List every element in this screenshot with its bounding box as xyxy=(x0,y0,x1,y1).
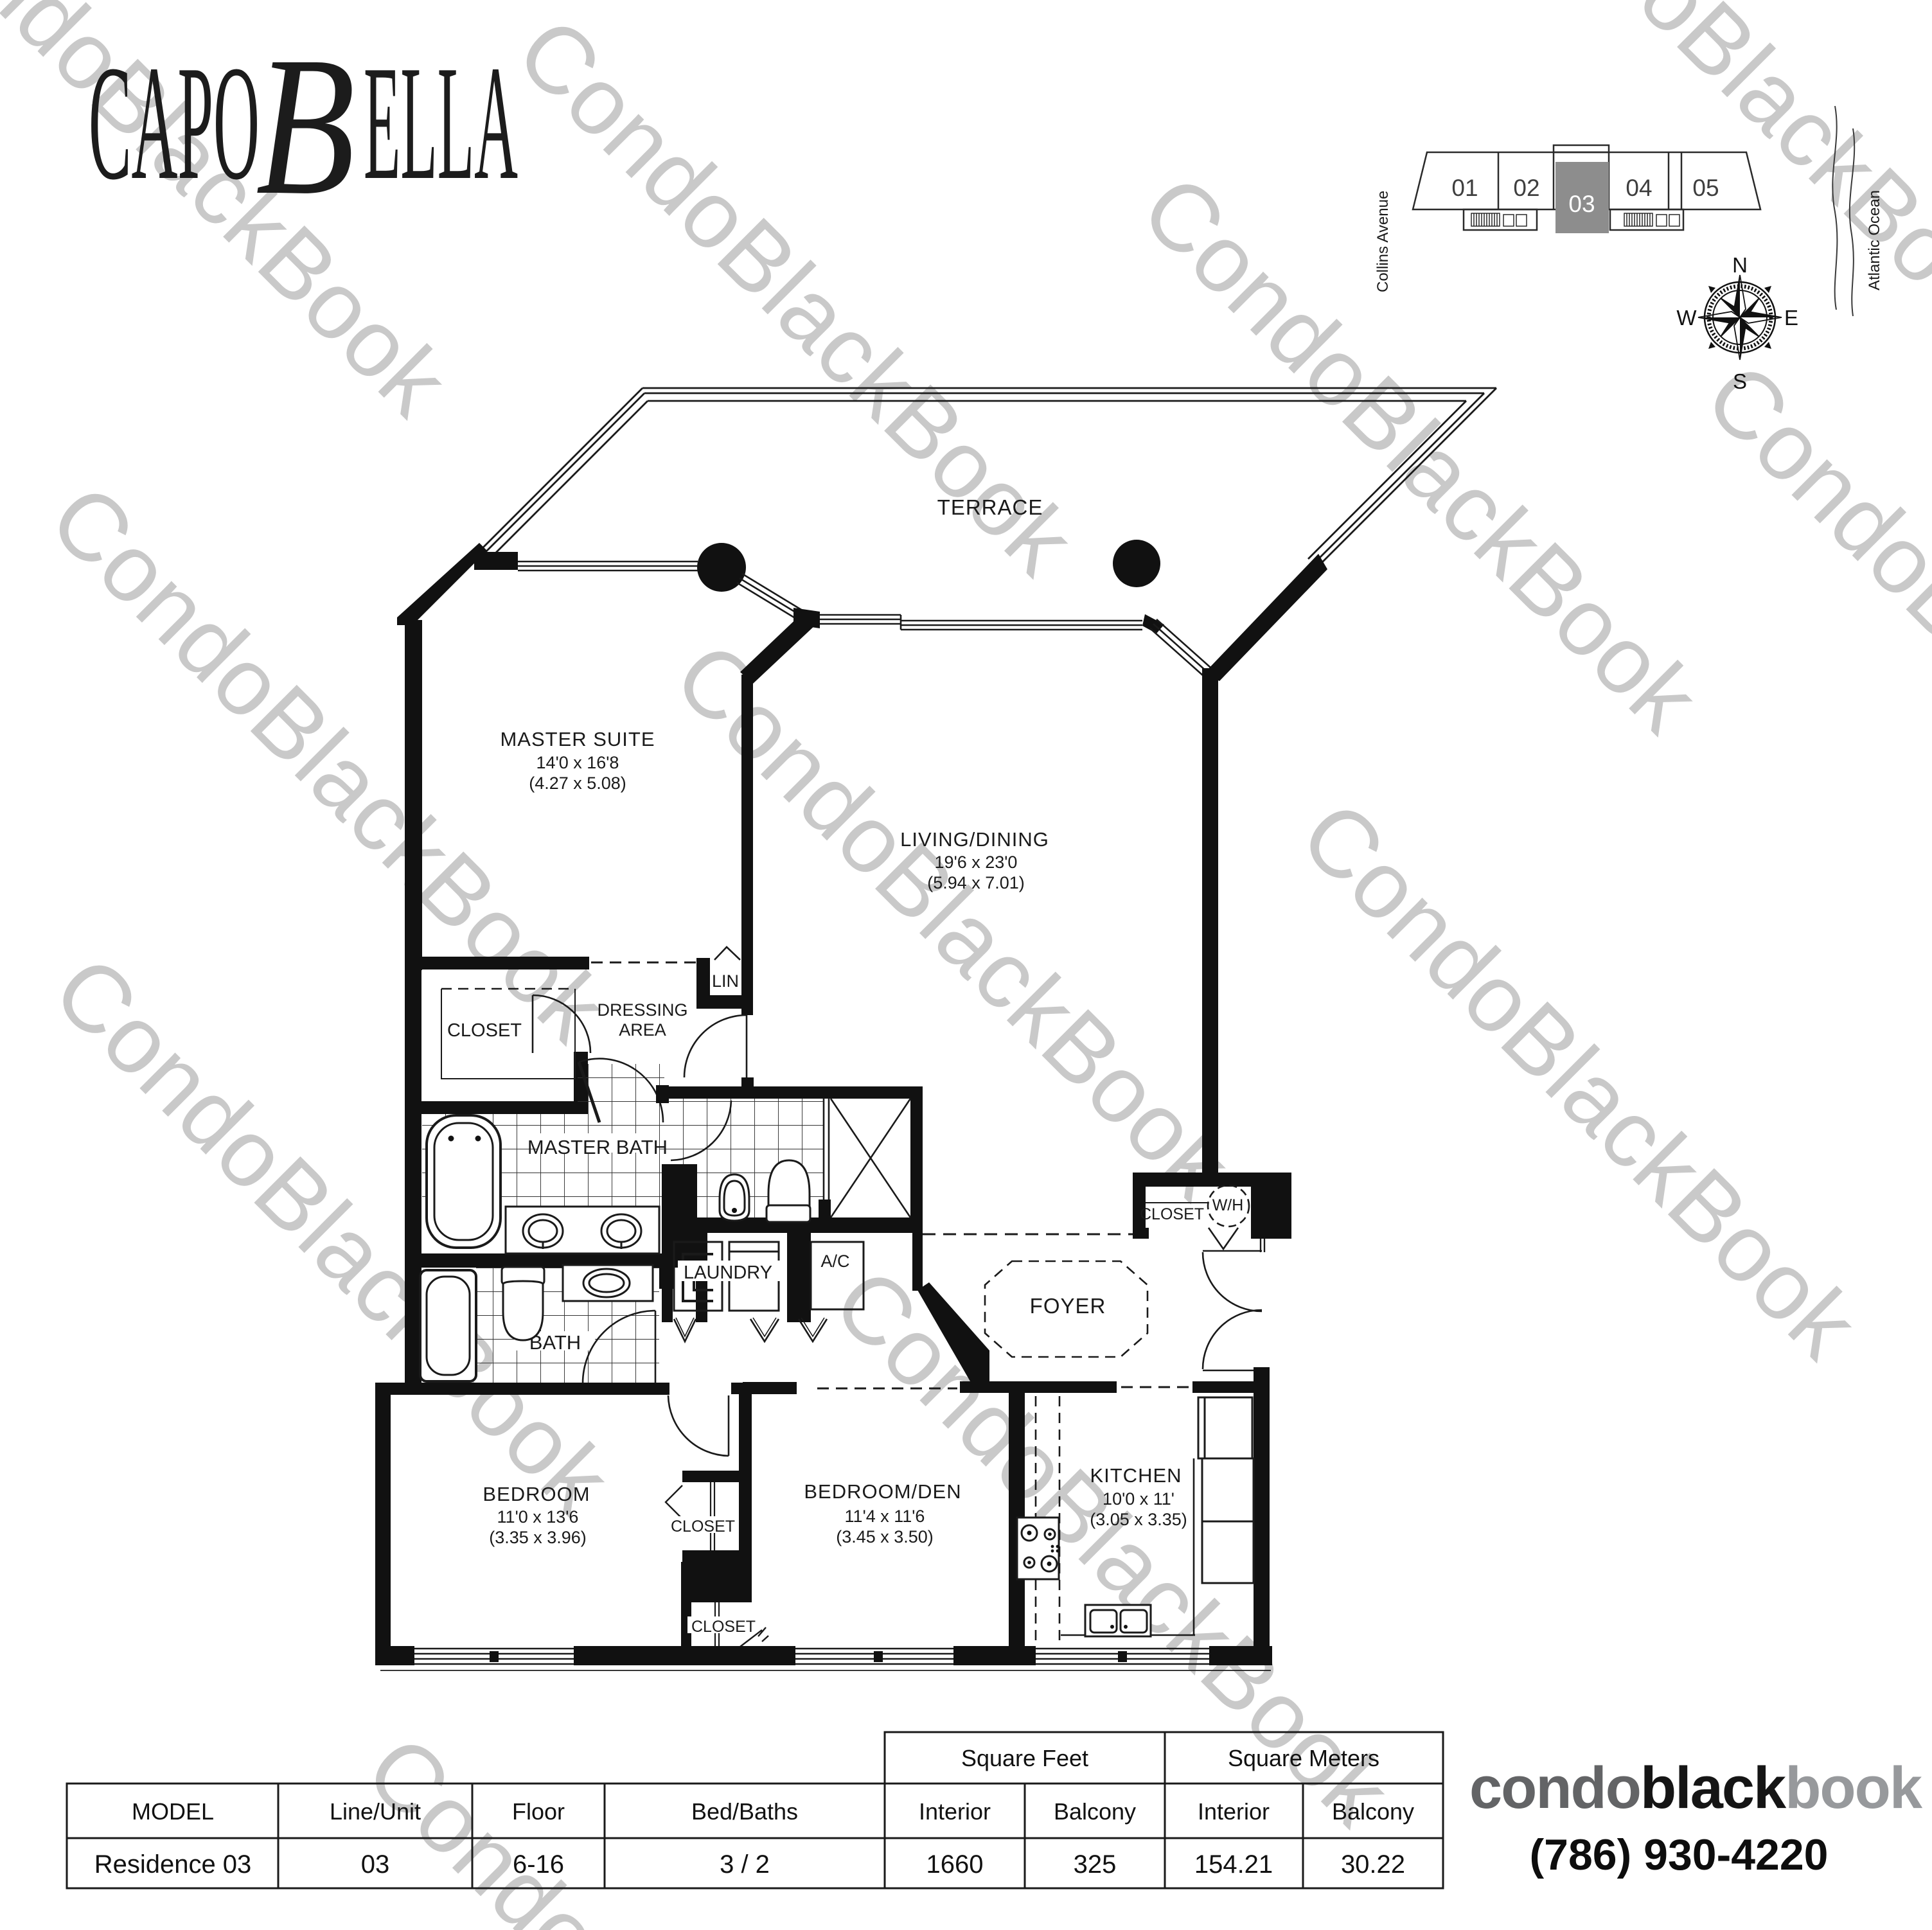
svg-text:11'4 x 11'6: 11'4 x 11'6 xyxy=(845,1507,925,1526)
svg-text:Square Meters: Square Meters xyxy=(1228,1745,1379,1771)
svg-text:MASTER BATH: MASTER BATH xyxy=(527,1136,668,1158)
svg-text:AREA: AREA xyxy=(619,1020,666,1040)
svg-text:E: E xyxy=(1784,306,1798,330)
svg-text:W/H: W/H xyxy=(1212,1196,1244,1214)
svg-text:Residence 03: Residence 03 xyxy=(94,1850,252,1879)
svg-text:Balcony: Balcony xyxy=(1332,1798,1414,1825)
svg-text:04: 04 xyxy=(1626,175,1652,201)
svg-text:Balcony: Balcony xyxy=(1054,1798,1136,1825)
svg-text:01: 01 xyxy=(1451,175,1478,201)
svg-text:Atlantic Ocean: Atlantic Ocean xyxy=(1866,190,1883,290)
svg-text:02: 02 xyxy=(1513,175,1539,201)
svg-text:FOYER: FOYER xyxy=(1030,1294,1106,1318)
svg-text:Bed/Baths: Bed/Baths xyxy=(691,1798,798,1825)
svg-text:03: 03 xyxy=(361,1850,390,1879)
svg-text:Collins Avenue: Collins Avenue xyxy=(1374,191,1392,292)
svg-text:N: N xyxy=(1732,253,1748,277)
svg-text:05: 05 xyxy=(1692,175,1719,201)
svg-text:LIVING/DINING: LIVING/DINING xyxy=(900,828,1049,851)
svg-text:3 / 2: 3 / 2 xyxy=(720,1850,770,1879)
svg-text:CLOSET: CLOSET xyxy=(1140,1205,1204,1223)
svg-text:30.22: 30.22 xyxy=(1341,1850,1405,1879)
svg-text:B: B xyxy=(256,16,355,236)
svg-text:Interior: Interior xyxy=(1198,1798,1270,1825)
svg-text:ELLA: ELLA xyxy=(364,32,518,214)
svg-text:S: S xyxy=(1733,369,1747,393)
svg-text:(5.94 x 7.01): (5.94 x 7.01) xyxy=(927,873,1025,892)
svg-text:MASTER SUITE: MASTER SUITE xyxy=(500,728,655,750)
svg-text:BEDROOM/DEN: BEDROOM/DEN xyxy=(804,1480,961,1503)
svg-text:(3.35 x 3.96): (3.35 x 3.96) xyxy=(489,1528,587,1547)
svg-text:14'0 x 16'8: 14'0 x 16'8 xyxy=(536,753,619,772)
svg-text:Interior: Interior xyxy=(919,1798,991,1825)
svg-text:325: 325 xyxy=(1074,1850,1117,1879)
svg-text:CLOSET: CLOSET xyxy=(671,1518,735,1536)
svg-text:DRESSING: DRESSING xyxy=(597,1000,687,1020)
svg-text:(3.05 x 3.35): (3.05 x 3.35) xyxy=(1090,1510,1187,1529)
svg-text:11'0 x 13'6: 11'0 x 13'6 xyxy=(497,1507,579,1527)
svg-text:KITCHEN: KITCHEN xyxy=(1090,1464,1182,1487)
svg-text:(3.45 x 3.50): (3.45 x 3.50) xyxy=(836,1527,934,1546)
svg-text:W: W xyxy=(1676,306,1697,330)
svg-text:Floor: Floor xyxy=(512,1798,565,1825)
svg-text:CLOSET: CLOSET xyxy=(691,1618,756,1636)
svg-text:Square Feet: Square Feet xyxy=(961,1745,1088,1771)
svg-text:Line/Unit: Line/Unit xyxy=(330,1798,421,1825)
svg-text:10'0 x 11': 10'0 x 11' xyxy=(1103,1489,1174,1509)
svg-text:03: 03 xyxy=(1568,191,1595,217)
svg-text:LAUNDRY: LAUNDRY xyxy=(684,1262,772,1283)
svg-text:TERRACE: TERRACE xyxy=(937,495,1043,519)
svg-text:BEDROOM: BEDROOM xyxy=(483,1483,590,1505)
svg-text:19'6 x 23'0: 19'6 x 23'0 xyxy=(935,853,1018,872)
svg-text:154.21: 154.21 xyxy=(1194,1850,1273,1879)
svg-text:condoblackbook: condoblackbook xyxy=(1469,1755,1923,1821)
svg-text:LIN: LIN xyxy=(712,971,739,991)
svg-text:1660: 1660 xyxy=(926,1850,984,1879)
svg-text:MODEL: MODEL xyxy=(132,1798,214,1825)
svg-text:CAPO: CAPO xyxy=(89,32,260,214)
svg-text:CLOSET: CLOSET xyxy=(447,1020,522,1041)
svg-text:6-16: 6-16 xyxy=(513,1850,564,1879)
svg-text:(4.27 x 5.08): (4.27 x 5.08) xyxy=(529,774,626,793)
svg-text:(786) 930-4220: (786) 930-4220 xyxy=(1529,1830,1828,1879)
svg-text:A/C: A/C xyxy=(820,1252,849,1271)
